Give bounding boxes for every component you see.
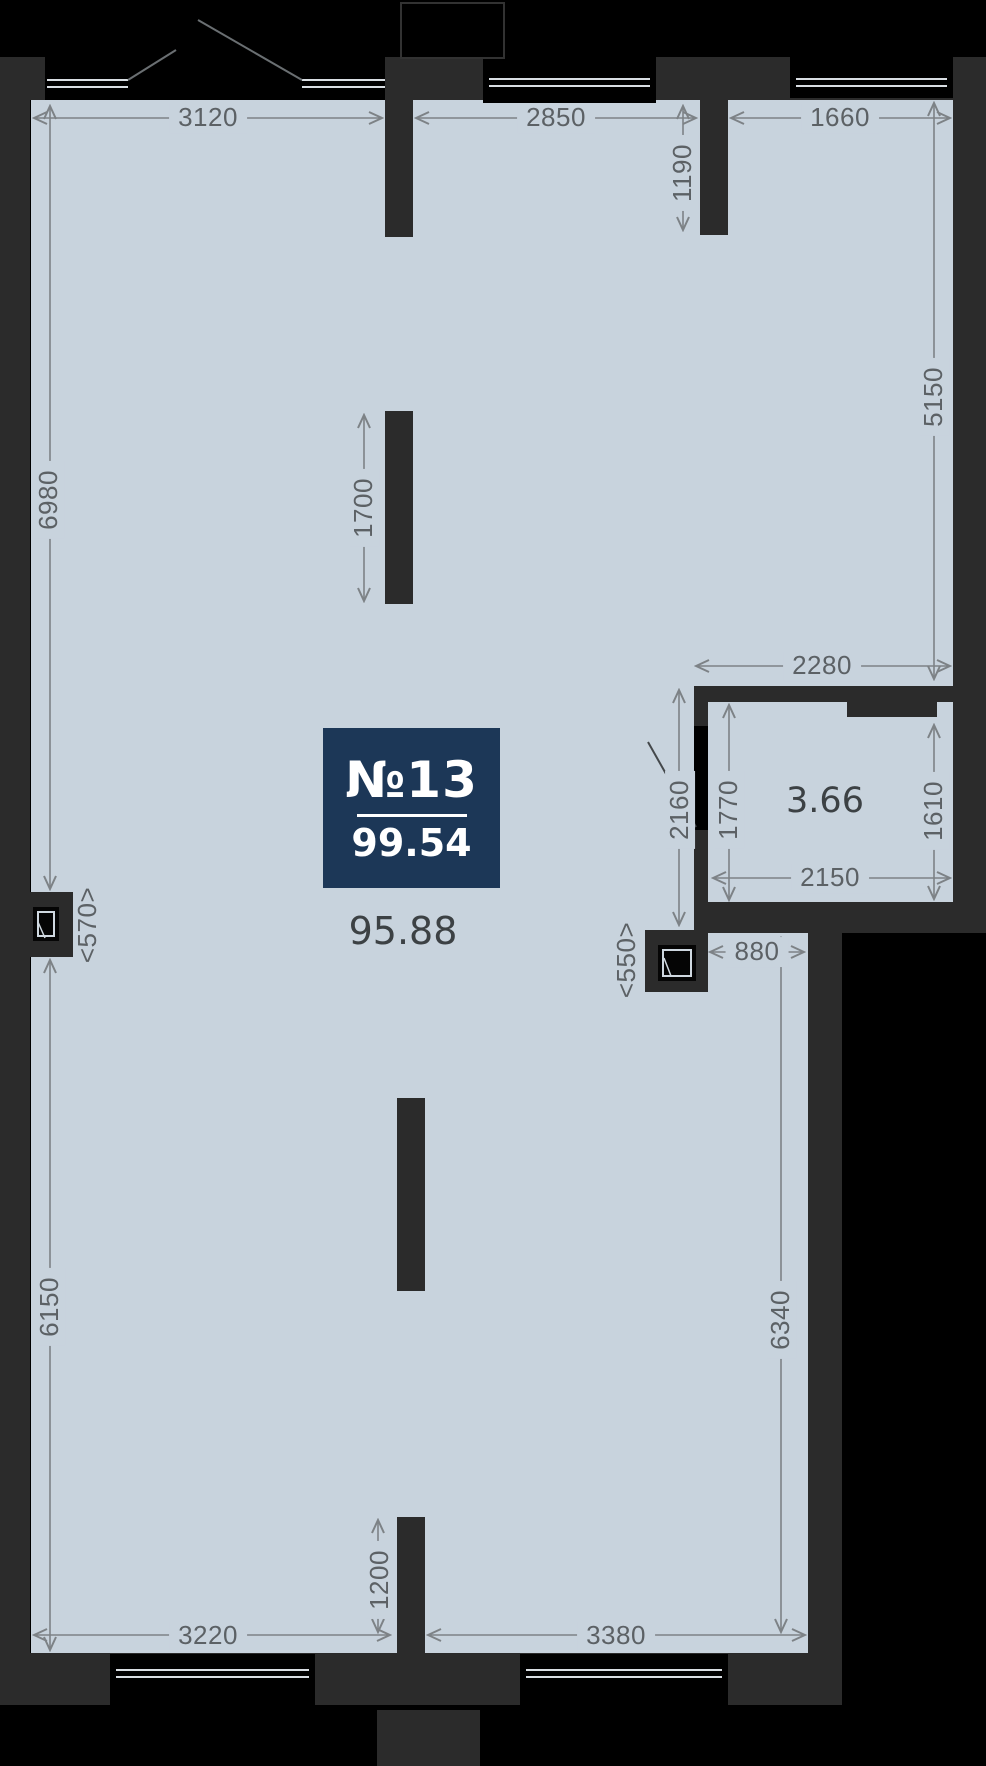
wall-left [0, 57, 30, 1705]
dim-6150: 6150 [35, 1268, 65, 1346]
floor-upper [31, 100, 953, 686]
wall-bathroom-bottom [694, 902, 986, 933]
dim-bottom-3380: 3380 [577, 1621, 655, 1651]
dim-top-1660: 1660 [801, 103, 879, 133]
window-bottom-left-sill [116, 1669, 309, 1678]
window-top-left-sill-a [47, 79, 128, 88]
window-bottom-right [520, 1654, 728, 1705]
floor-plan: 3120 2850 1660 1190 5150 6980 1700 2280 … [0, 0, 986, 1766]
unit-badge: №13 99.54 [323, 728, 500, 888]
dim-550: <550> [612, 913, 642, 1007]
main-room-area-label: 95.88 [349, 909, 458, 953]
wall-stub-bottom [397, 1517, 425, 1653]
vent-shaft-left-inner [37, 911, 55, 937]
window-bottom-right-sill [526, 1669, 722, 1678]
dim-1200: 1200 [365, 1541, 395, 1619]
dim-top-3120: 3120 [169, 103, 247, 133]
unit-total-area: 99.54 [351, 824, 471, 862]
dim-1770: 1770 [714, 771, 744, 849]
wall-right-lower [808, 933, 842, 1705]
dim-6980: 6980 [34, 461, 64, 539]
dim-top-2850: 2850 [517, 103, 595, 133]
window-top-right-sill [796, 78, 947, 87]
dim-bottom-3220: 3220 [169, 1621, 247, 1651]
dim-2280: 2280 [783, 651, 861, 681]
window-top-middle-sill [489, 78, 650, 87]
dim-2150: 2150 [791, 863, 869, 893]
wall-partition-upper [385, 411, 413, 604]
dim-1700: 1700 [349, 469, 379, 547]
wall-bathroom-left-upper [694, 686, 708, 726]
vent-shaft-left-icon [33, 907, 59, 941]
unit-number: №13 [345, 755, 478, 805]
dim-880: 880 [726, 937, 789, 967]
wall-pier-top-right [700, 57, 728, 235]
wall-bathroom-left-lower [694, 830, 708, 903]
vent-shaft-bathroom-inner [662, 949, 692, 977]
wall-partition-lower [397, 1098, 425, 1291]
dim-6340: 6340 [766, 1281, 796, 1359]
wall-stub-top [385, 57, 413, 237]
balcony-tab-bottom [377, 1710, 480, 1766]
wall-right-upper [953, 57, 986, 933]
window-bottom-left [110, 1654, 315, 1705]
window-top-left-sill-b [302, 79, 385, 88]
vent-shaft-bathroom-icon [658, 945, 696, 981]
dim-1190: 1190 [668, 135, 698, 211]
wall-bathroom-top-duct [847, 686, 937, 717]
dim-1610: 1610 [919, 772, 949, 850]
bathroom-area-label: 3.66 [786, 781, 864, 821]
dim-570: <570> [73, 878, 103, 972]
dim-5150: 5150 [919, 358, 949, 436]
badge-divider [357, 814, 467, 817]
dim-2160: 2160 [665, 771, 695, 849]
balcony-tab-top [400, 2, 505, 59]
